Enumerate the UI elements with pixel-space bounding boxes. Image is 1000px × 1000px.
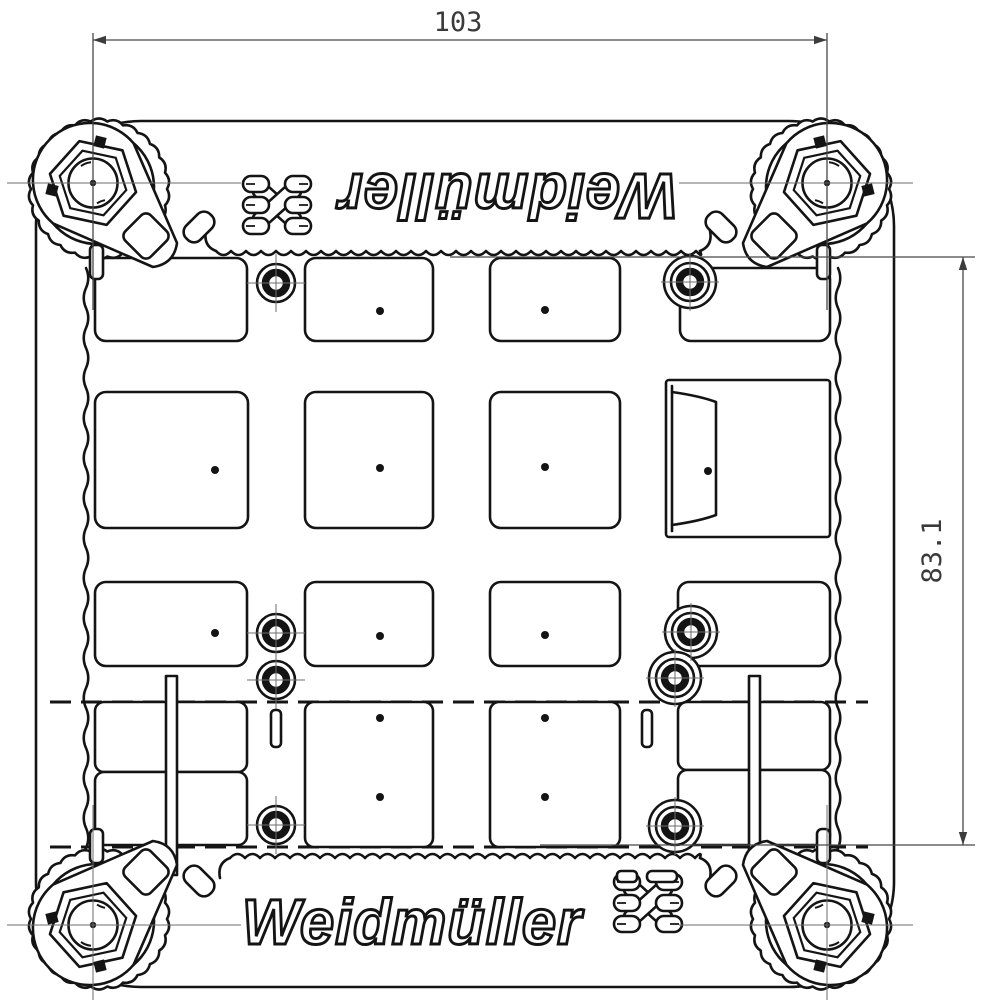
cutout-rect [95,258,247,341]
brand-name-top: Weidmüller [336,160,678,232]
dimension-width-value: 103 [434,7,483,38]
mounting-plate-drawing: Weidmüller Weidmüller [0,0,1000,1000]
brand-name-bottom: Weidmüller [242,886,584,958]
technical-drawing-page: Weidmüller Weidmüller [0,0,1000,1000]
cutout-rect [305,582,433,666]
latch-slot-left [271,710,281,747]
guide-rail-left [166,676,177,875]
dimension-height-value: 83.1 [917,518,948,583]
cutout-rect [490,258,620,341]
cutout-rect [305,258,433,341]
cutout-rect [490,582,620,666]
latch-slot-right [642,710,652,747]
bottom-clip-large [647,871,677,882]
cutout-rect [95,392,248,528]
cutout-rect [490,392,620,528]
bottom-clip-small [617,871,637,882]
connector-pocket [666,380,830,537]
cutout-rect [305,702,433,847]
cutout-rect [305,392,433,528]
cutout-rect [490,702,620,847]
cutout-rect [95,582,247,666]
